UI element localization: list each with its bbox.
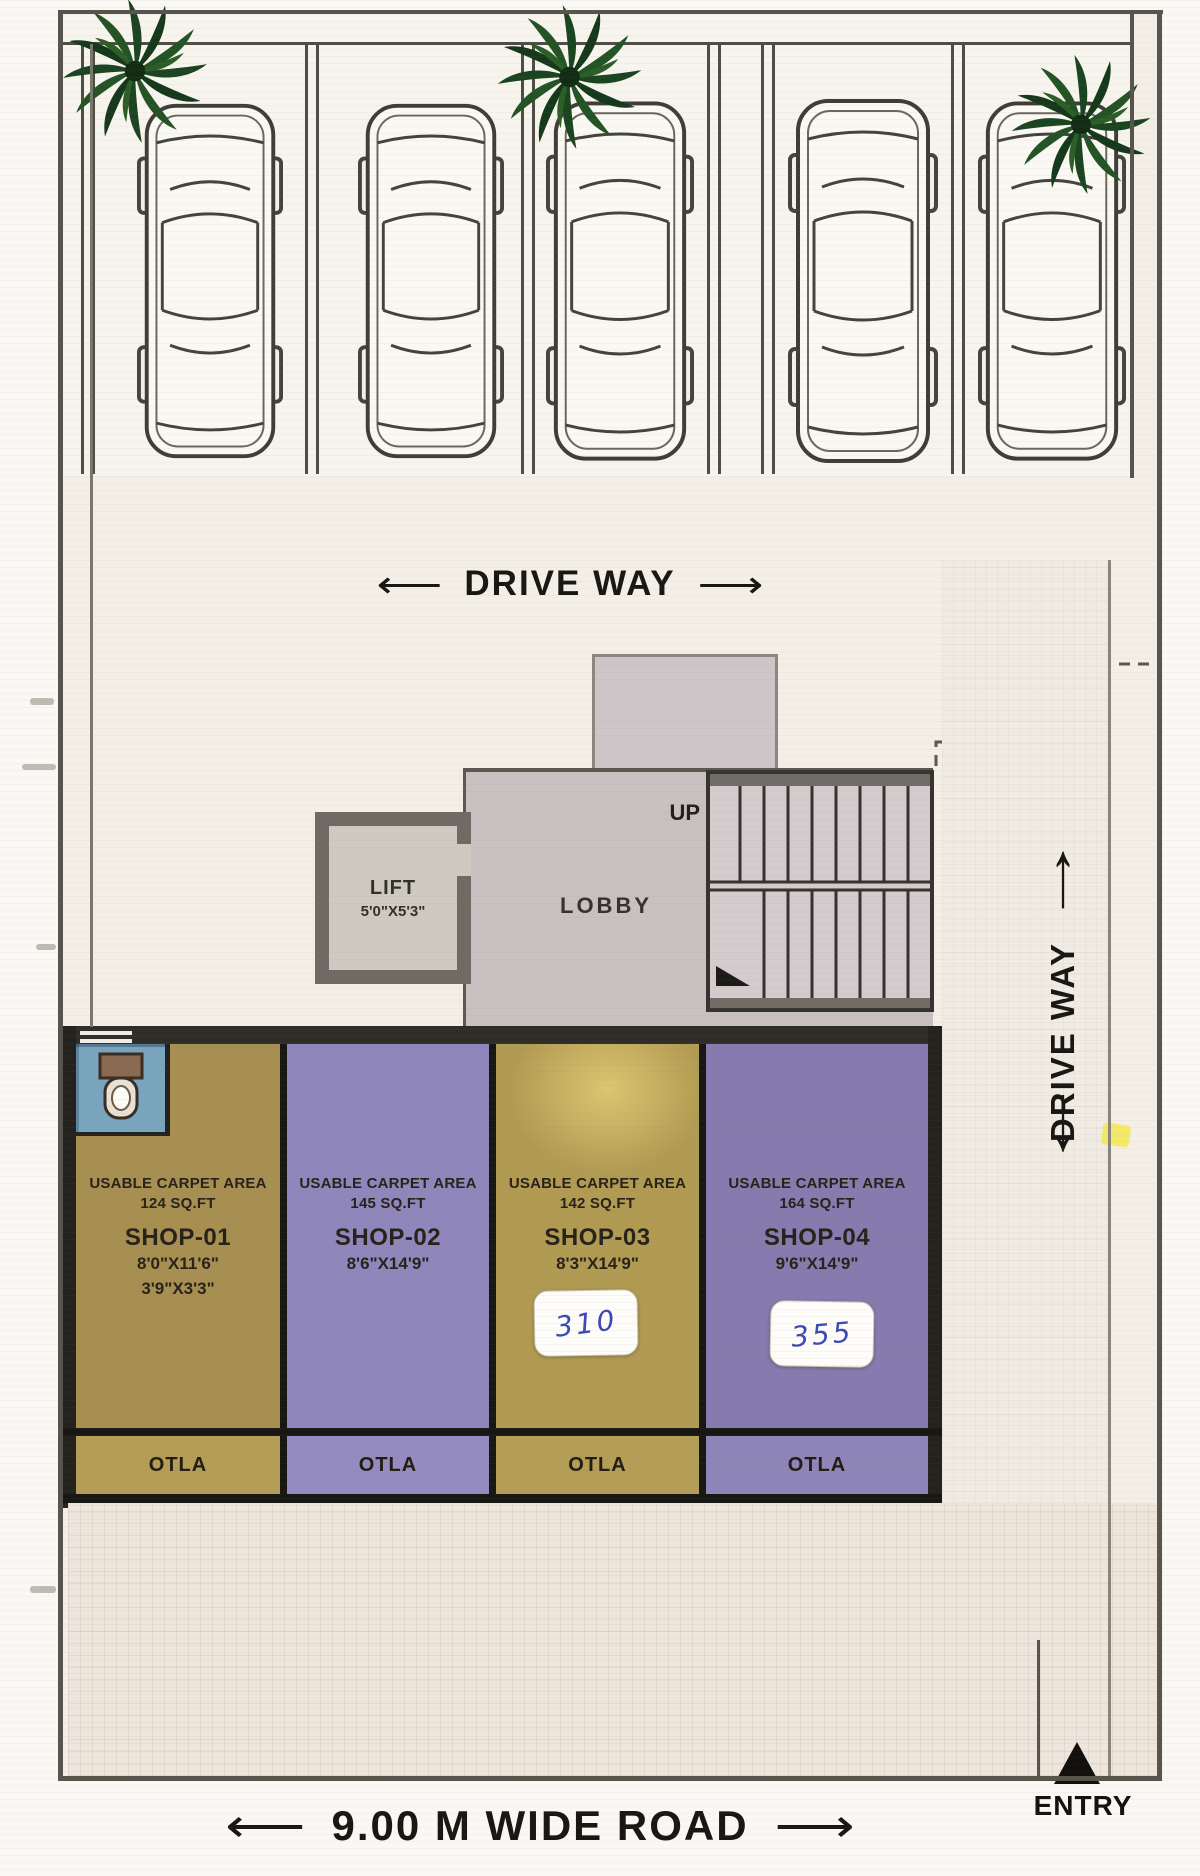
highlighter-mark	[1101, 1122, 1132, 1148]
staircase	[706, 770, 934, 1012]
otla-partition	[280, 1436, 287, 1494]
parked-car-icon	[358, 94, 504, 470]
lift-cabin: LIFT 5'0"X5'3"	[329, 826, 457, 970]
shop-area-label: USABLE CARPET AREA	[299, 1174, 476, 1194]
driveway-top-label-group: ⟵ DRIVE WAY ⟶	[340, 556, 800, 612]
handwritten-price-sticker: 355	[769, 1300, 874, 1368]
road-label-group: ⟵ 9.00 M WIDE ROAD ⟶	[150, 1794, 930, 1858]
otla-shop-04: OTLA	[706, 1436, 928, 1494]
otla-front-edge	[63, 1494, 942, 1503]
shop-dimensions: 8'3"X14'9"	[556, 1252, 639, 1277]
arrow-right-icon: ⟶	[698, 564, 764, 603]
scan-smudge	[22, 764, 56, 770]
shop-dimensions: 9'6"X14'9"	[776, 1252, 859, 1277]
shop-03-text: USABLE CARPET AREA 142 SQ.FT SHOP-03 8'3…	[496, 1044, 699, 1428]
parked-car-icon	[137, 94, 283, 470]
lift-label: LIFT	[370, 877, 416, 900]
otla-shop-01: OTLA	[76, 1436, 280, 1494]
shop-partition-wall	[489, 1044, 496, 1428]
lobby-label: LOBBY	[541, 893, 671, 921]
parked-car-icon	[788, 94, 938, 470]
shop-partition-wall	[280, 1044, 287, 1428]
lift-size-label: 5'0"X5'3"	[361, 903, 426, 920]
wall-vent	[80, 1031, 132, 1035]
shop-area-label: USABLE CARPET AREA	[89, 1174, 266, 1194]
shop-unit-02: USABLE CARPET AREA 145 SQ.FT SHOP-02 8'6…	[287, 1044, 489, 1428]
shop-area-value: 145 SQ.FT	[350, 1194, 425, 1214]
arrow-right-icon: ⟶	[775, 1802, 855, 1850]
shop-04-text: USABLE CARPET AREA 164 SQ.FT SHOP-04 9'6…	[706, 1044, 928, 1428]
arrow-left-icon: ⟵	[225, 1802, 305, 1850]
otla-partition	[699, 1436, 706, 1494]
parking-divider	[962, 44, 965, 474]
shop-name: SHOP-01	[125, 1224, 231, 1253]
otla-label: OTLA	[788, 1454, 846, 1477]
lobby-upper-extension	[592, 654, 778, 776]
plot-border-left	[58, 10, 63, 1781]
scan-smudge	[36, 944, 56, 950]
lift-door-opening	[455, 844, 471, 876]
shop-name: SHOP-02	[335, 1224, 441, 1253]
otla-partition	[489, 1436, 496, 1494]
shop-dimensions-2: 3'9"X3'3"	[141, 1277, 214, 1302]
shop-unit-04: USABLE CARPET AREA 164 SQ.FT SHOP-04 9'6…	[706, 1044, 928, 1428]
shops-rear-wall	[63, 1026, 942, 1044]
handwritten-note: 310	[553, 1303, 619, 1343]
palm-tree-icon	[492, 2, 647, 152]
shop-area-value: 142 SQ.FT	[560, 1194, 635, 1214]
entry-gate-line	[1037, 1640, 1040, 1776]
otla-label: OTLA	[359, 1454, 417, 1477]
shop-area-value: 124 SQ.FT	[140, 1194, 215, 1214]
plot-border-bottom	[58, 1776, 1162, 1781]
shop-partition-wall	[699, 1044, 706, 1428]
shop-dimensions: 8'0"X11'6"	[137, 1252, 219, 1277]
parking-right-edge	[1130, 12, 1134, 478]
stairs-up-label: UP	[650, 800, 700, 826]
handwritten-price-sticker: 310	[533, 1289, 638, 1357]
parking-divider	[951, 44, 954, 474]
plot-border-top	[58, 10, 1163, 14]
plot-border-left-inner	[90, 44, 93, 1027]
driveway-top-label: DRIVE WAY	[464, 564, 675, 604]
palm-tree-icon	[60, 0, 210, 146]
otla-label: OTLA	[568, 1454, 626, 1477]
toilet-nook	[76, 1044, 170, 1136]
parking-divider	[772, 44, 775, 474]
shop-unit-03: USABLE CARPET AREA 142 SQ.FT SHOP-03 8'3…	[496, 1044, 699, 1428]
otla-shop-03: OTLA	[496, 1436, 699, 1494]
parking-divider	[305, 44, 308, 474]
otla-label: OTLA	[149, 1454, 207, 1477]
scan-smudge	[30, 698, 54, 705]
parking-divider	[316, 44, 319, 474]
plot-border-right	[1157, 10, 1162, 1781]
shop-02-text: USABLE CARPET AREA 145 SQ.FT SHOP-02 8'6…	[287, 1044, 489, 1428]
front-paved-area	[68, 1503, 1157, 1776]
parking-divider	[761, 44, 764, 474]
wall-vent	[80, 1039, 132, 1043]
handwritten-note: 355	[789, 1315, 854, 1353]
plot-border-right-inner	[1108, 560, 1111, 1776]
shop-area-label: USABLE CARPET AREA	[728, 1174, 905, 1194]
road-label: 9.00 M WIDE ROAD	[331, 1802, 748, 1850]
shop-name: SHOP-03	[544, 1224, 650, 1253]
arrow-left-icon: ⟵	[376, 564, 442, 603]
shop-area-value: 164 SQ.FT	[779, 1194, 854, 1214]
parking-divider	[707, 44, 710, 474]
shop-dimensions: 8'6"X14'9"	[347, 1252, 430, 1277]
shop-name: SHOP-04	[764, 1224, 870, 1253]
arrow-down-icon: ↓	[1037, 1070, 1090, 1262]
otla-shop-02: OTLA	[287, 1436, 489, 1494]
scan-smudge	[30, 1586, 56, 1593]
shop-area-label: USABLE CARPET AREA	[509, 1174, 686, 1194]
floor-plan-sheet: ⟵ DRIVE WAY ⟶ LOBBY LIFT 5'0"X5'3" UP	[0, 0, 1200, 1876]
parking-divider	[718, 44, 721, 474]
right-driveway-corridor	[942, 560, 1108, 1503]
shops-front-wall	[63, 1428, 942, 1436]
entry-label: ENTRY	[1008, 1790, 1158, 1822]
toilet-fixture-icon	[94, 1052, 150, 1128]
